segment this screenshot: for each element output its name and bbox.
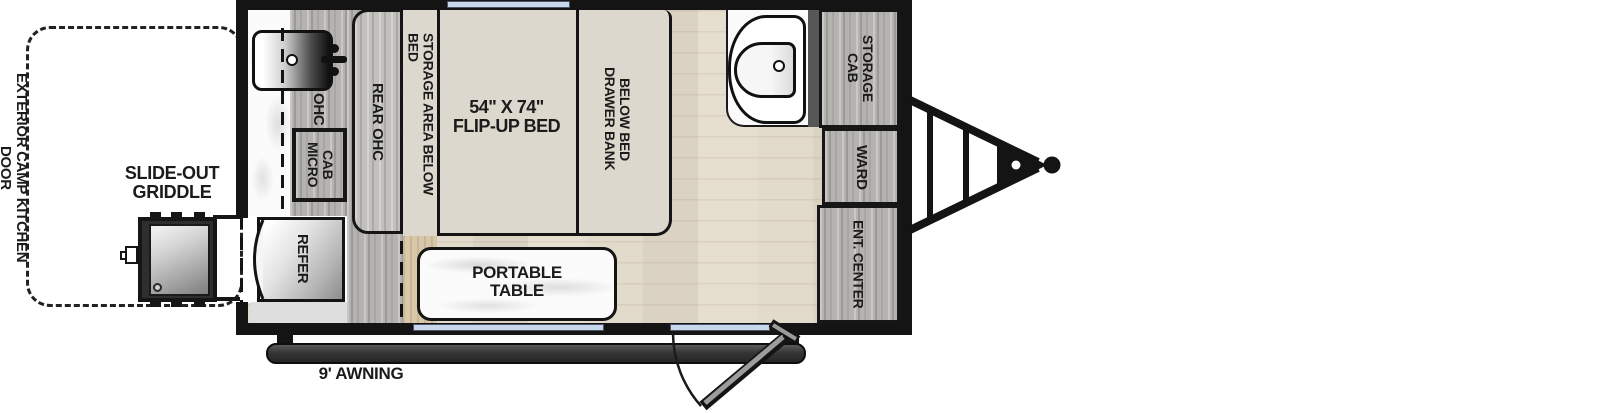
hitch-icon bbox=[910, 100, 1061, 230]
floorplan-diagram: EXTERIOR CAMP KITCHEN DOOR SLIDE-OUT GRI… bbox=[0, 0, 1600, 413]
entry-door-icon bbox=[673, 323, 798, 406]
refer-door-curve-icon bbox=[255, 220, 264, 299]
overlay-graphics bbox=[0, 0, 1600, 413]
